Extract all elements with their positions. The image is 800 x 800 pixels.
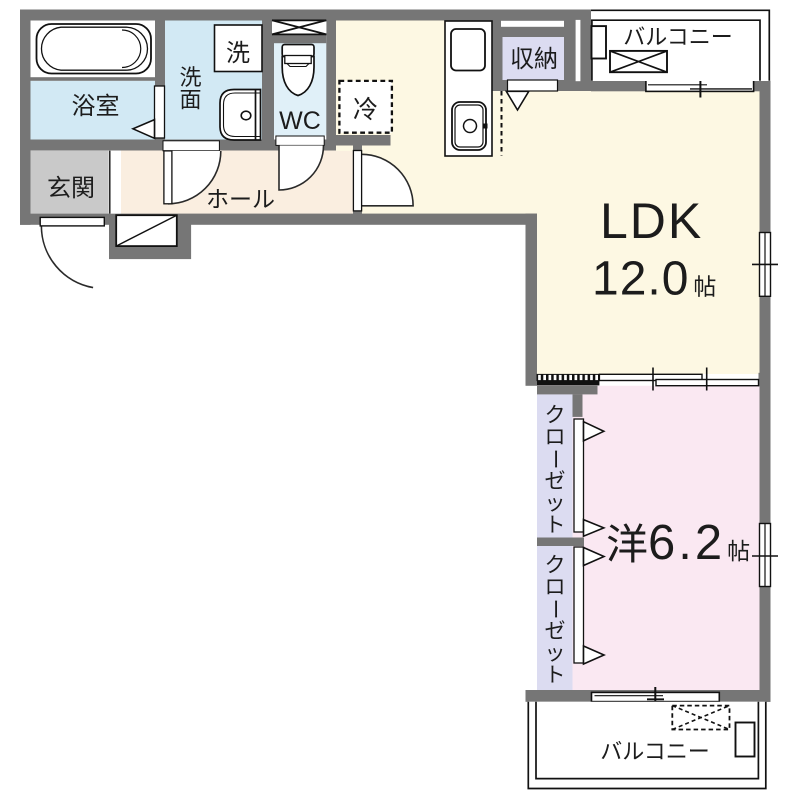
svg-text:WC: WC — [279, 107, 321, 135]
svg-text:洗: 洗 — [179, 65, 201, 90]
svg-text:ゼ: ゼ — [545, 620, 566, 643]
svg-text:ト: ト — [545, 664, 566, 687]
svg-text:冷: 冷 — [353, 96, 378, 124]
svg-text:ゼ: ゼ — [545, 470, 566, 493]
svg-text:バルコニー: バルコニー — [600, 739, 710, 764]
svg-text:ッ: ッ — [545, 492, 566, 515]
svg-text:LDK: LDK — [600, 193, 703, 249]
svg-text:玄関: 玄関 — [47, 175, 95, 202]
svg-text:浴室: 浴室 — [72, 93, 120, 120]
svg-text:収納: 収納 — [510, 46, 558, 73]
svg-text:ク: ク — [545, 404, 566, 427]
svg-text:ッ: ッ — [545, 642, 566, 665]
svg-text:洗: 洗 — [226, 40, 250, 67]
svg-text:ク: ク — [545, 554, 566, 577]
svg-text:面: 面 — [179, 88, 201, 113]
svg-text:ロ: ロ — [545, 576, 566, 599]
svg-text:ホール: ホール — [206, 186, 275, 212]
svg-text:ー: ー — [543, 449, 566, 470]
svg-text:ト: ト — [545, 514, 566, 537]
svg-text:ロ: ロ — [545, 426, 566, 449]
svg-text:バルコニー: バルコニー — [623, 25, 733, 50]
svg-text:ー: ー — [543, 599, 566, 620]
